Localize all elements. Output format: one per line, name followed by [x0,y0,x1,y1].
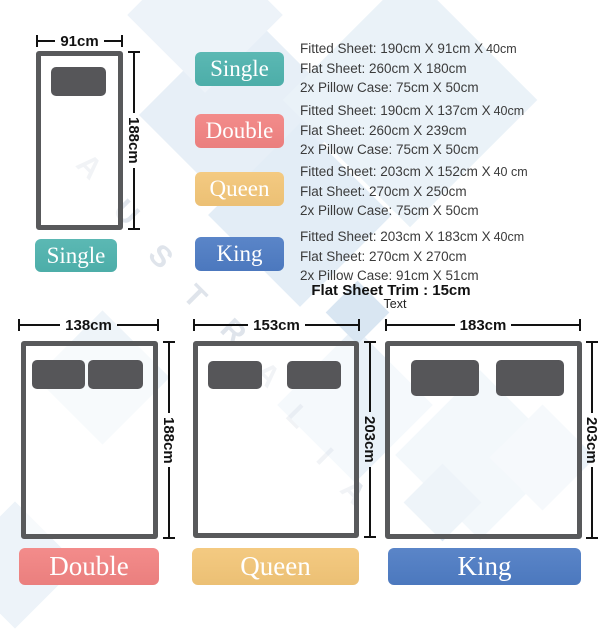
dimension-line [369,343,371,412]
dimension-line [305,324,358,326]
king-width-dimension: 183cm [385,317,581,333]
dimension-line [168,343,170,413]
dimension-tick [358,319,360,331]
pillow [32,360,85,389]
fitted-depth: 40cm [494,230,525,244]
single-height-label: 188cm [125,113,142,168]
dimension-line [104,40,121,42]
dimension-line [369,467,371,536]
single-bed-diagram [36,51,123,230]
dimension-line [168,467,170,537]
dimension-line [20,324,60,326]
spec-line-flat: Flat Sheet: 260cm X 180cm [300,59,517,78]
dimension-tick [579,319,581,331]
single-width-label: 91cm [55,33,103,50]
queen-height-label: 203cm [361,412,378,467]
dimension-tick [157,319,159,331]
size-key-badge-king: King [195,237,284,271]
spec-line-fitted: Fitted Sheet: 203cm X 183cm X40cm [300,227,524,247]
dimension-line [38,40,55,42]
spec-group-king: Fitted Sheet: 203cm X 183cm X40cm Flat S… [300,227,524,285]
dimension-line [511,324,579,326]
double-height-dimension: 188cm [161,341,176,539]
watermark-letter: T [176,278,213,315]
queen-width-label: 153cm [248,317,305,334]
spec-group-queen: Fitted Sheet: 203cm X 152cm X40 cm Flat … [300,162,528,220]
spec-line-flat: Flat Sheet: 270cm X 250cm [300,182,528,201]
pillow [51,67,106,96]
size-key-badge-queen: Queen [195,172,284,206]
pillow [496,360,564,396]
double-bed-diagram [21,341,158,539]
pillow [208,361,262,389]
size-key-badge-single: Single [195,52,284,86]
dimension-line [133,53,135,113]
fitted-depth: 40cm [494,104,525,118]
dimension-line [387,324,455,326]
queen-height-dimension: 203cm [362,341,377,538]
spec-line-pillow: 2x Pillow Case: 75cm X 50cm [300,201,528,220]
pillow [411,360,479,396]
fitted-depth: 40cm [486,42,517,56]
spec-line-fitted: Fitted Sheet: 190cm X 91cm X40cm [300,39,517,59]
dimension-line [591,467,593,537]
size-key-badge-double: Double [195,114,284,148]
dimension-tick [128,228,140,230]
double-height-label: 188cm [160,413,177,468]
queen-bed-name-badge: Queen [192,548,359,585]
spec-line-pillow: 2x Pillow Case: 75cm X 50cm [300,78,517,97]
queen-bed-diagram [193,341,359,538]
spec-line-fitted: Fitted Sheet: 190cm X 137cm X40cm [300,101,524,121]
spec-group-single: Fitted Sheet: 190cm X 91cm X40cm Flat Sh… [300,39,517,97]
king-bed-name-badge: King [388,548,581,585]
double-width-label: 138cm [60,317,117,334]
dimension-line [591,343,593,413]
dimension-tick [121,35,123,47]
text-placeholder: Text [300,297,490,311]
king-width-label: 183cm [455,317,512,334]
pillow [287,361,341,389]
single-height-dimension: 188cm [126,51,141,230]
spec-line-flat: Flat Sheet: 270cm X 270cm [300,247,524,266]
dimension-line [133,168,135,228]
spec-line-pillow: 2x Pillow Case: 75cm X 50cm [300,140,524,159]
pillow [88,360,143,389]
fitted-depth: 40 cm [494,165,528,179]
double-bed-name-badge: Double [19,548,159,585]
queen-width-dimension: 153cm [193,317,360,333]
king-height-label: 203cm [583,413,600,468]
dimension-tick [163,537,175,539]
watermark-letter: S [141,238,179,276]
single-width-dimension: 91cm [36,33,123,49]
spec-line-flat: Flat Sheet: 260cm X 239cm [300,121,524,140]
dimension-line [195,324,248,326]
king-bed-diagram [385,341,582,539]
dimension-tick [364,536,376,538]
bed-sheet-size-chart: { "palette": { "single": "#4FB3AE", "dou… [0,0,600,600]
king-height-dimension: 203cm [584,341,599,539]
single-bed-name-badge: Single [35,239,117,272]
spec-line-fitted: Fitted Sheet: 203cm X 152cm X40 cm [300,162,528,182]
dimension-tick [586,537,598,539]
double-width-dimension: 138cm [18,317,159,333]
spec-group-double: Fitted Sheet: 190cm X 137cm X40cm Flat S… [300,101,524,159]
dimension-line [117,324,157,326]
